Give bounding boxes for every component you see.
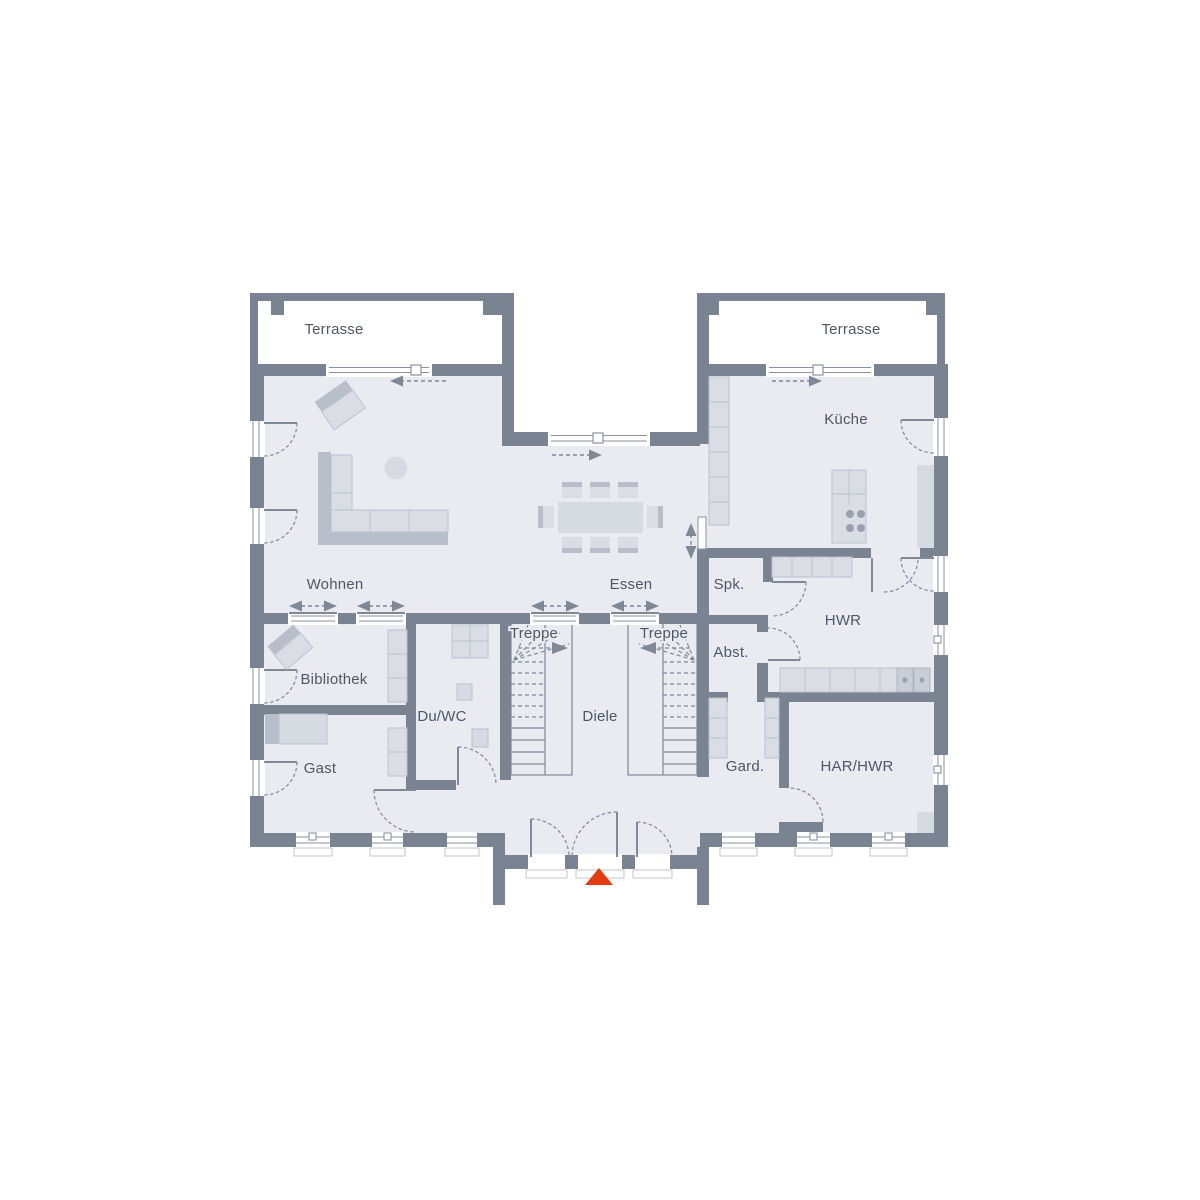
room-label-treppe-right: Treppe [640,625,688,642]
window-bottom-right-3 [870,832,907,856]
french-door-left-3 [249,668,265,704]
wardrobe-gast [388,728,407,776]
window-bottom-left-3 [445,832,479,856]
room-label-essen: Essen [610,576,653,593]
shower-duwc [452,625,488,658]
room-label-har-hwr: HAR/HWR [820,758,893,775]
bed-gast [265,714,327,744]
room-label-diele: Diele [582,708,617,725]
room-label-terrasse-right: Terrasse [821,321,880,338]
window-bottom-right-1 [720,832,757,856]
hwr-counter-top [772,557,852,577]
room-label-gast: Gast [304,760,337,777]
window-har-right [933,755,949,785]
exterior-door-kitchen [933,418,949,456]
window-hwr-right [933,625,949,655]
window-bottom-right-2 [795,832,832,856]
room-label-hwr: HWR [825,612,861,629]
sliding-door-terrace-right [766,363,874,377]
room-label-terrasse-left: Terrasse [304,321,363,338]
kitchen-counter-left [709,377,729,525]
room-label-abst: Abst. [713,644,748,661]
kitchen-tall-cabinet [917,465,934,548]
room-label-bibliothek: Bibliothek [300,671,367,688]
sliding-door-courtyard [548,431,650,446]
french-door-left-4 [249,760,265,796]
bookshelf-bibliothek [388,630,407,702]
sink-duwc [457,684,472,700]
toilet-duwc [472,729,488,747]
window-bottom-left-2 [370,832,405,856]
room-label-treppe-left: Treppe [510,625,558,642]
room-label-duwc: Du/WC [417,708,466,725]
room-label-kueche: Küche [824,411,868,428]
french-door-left-1 [249,421,265,457]
sliding-door-terrace-left [326,363,432,377]
exterior-door-hwr [933,556,949,592]
side-table-wohnen [385,457,408,480]
washer-dryer [897,668,930,692]
har-floor-pad [917,812,934,833]
floorplan-canvas: Terrasse Terrasse Wohnen Essen Küche Spk… [0,0,1200,1200]
room-label-spk: Spk. [714,576,745,593]
room-label-wohnen: Wohnen [307,576,364,593]
window-bottom-left-1 [294,832,332,856]
hwr-counter-bottom [780,668,930,692]
room-label-gard: Gard. [726,758,765,775]
kitchen-island [832,470,866,543]
french-door-left-2 [249,508,265,544]
floorplan-page: Terrasse Terrasse Wohnen Essen Küche Spk… [0,0,1200,1200]
